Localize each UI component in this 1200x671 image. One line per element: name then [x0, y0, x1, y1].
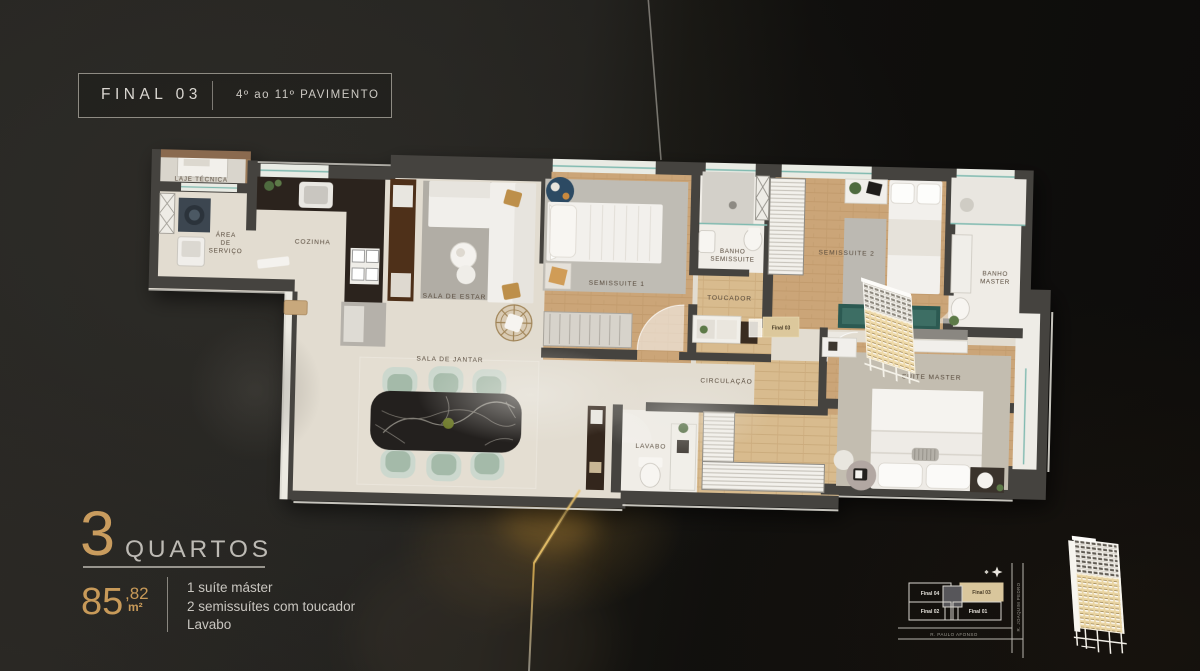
svg-text:Final 04: Final 04: [921, 591, 940, 597]
svg-text:Final 01: Final 01: [969, 609, 988, 615]
svg-text:R. JOAQUIM PEDRO: R. JOAQUIM PEDRO: [1016, 582, 1021, 631]
svg-text:R. PAULO AFONSO: R. PAULO AFONSO: [930, 632, 978, 637]
svg-text:Final 02: Final 02: [921, 609, 940, 615]
svg-text:Final 03: Final 03: [972, 590, 991, 596]
svg-text:Final 03: Final 03: [772, 326, 791, 332]
